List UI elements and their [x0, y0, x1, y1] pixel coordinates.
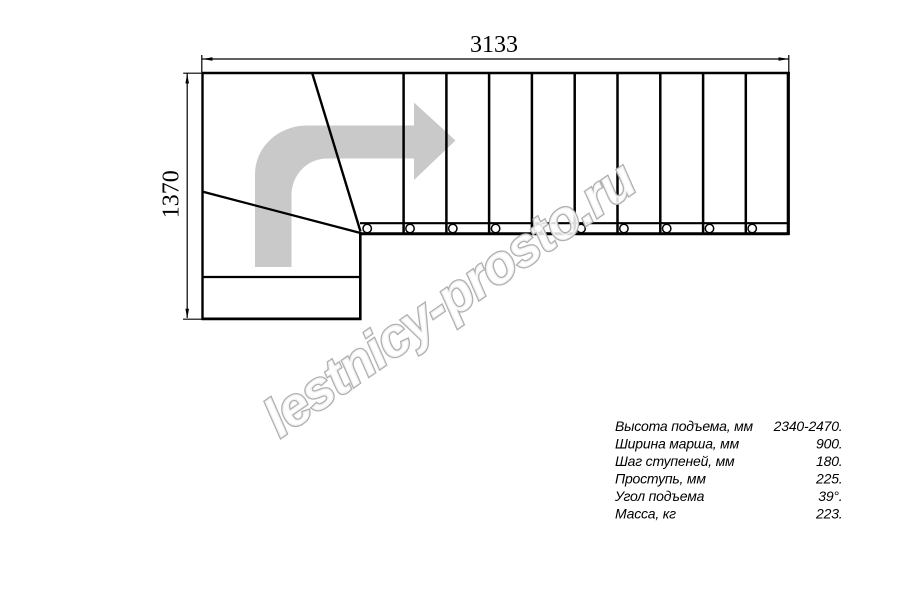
svg-text:900.: 900. — [816, 436, 842, 452]
svg-text:Масса, кг: Масса, кг — [615, 506, 676, 522]
svg-text:Шаг ступеней, мм: Шаг ступеней, мм — [615, 453, 735, 469]
svg-text:225.: 225. — [815, 471, 842, 487]
svg-text:223.: 223. — [815, 506, 842, 522]
svg-text:Высота подъема, мм: Высота подъема, мм — [615, 418, 754, 434]
svg-text:39°.: 39°. — [818, 488, 842, 504]
svg-text:3133: 3133 — [470, 32, 518, 58]
svg-text:1370: 1370 — [159, 170, 185, 218]
svg-text:Проступь, мм: Проступь, мм — [615, 471, 706, 487]
svg-text:Угол подъема: Угол подъема — [614, 488, 705, 504]
svg-text:Ширина марша, мм: Ширина марша, мм — [615, 436, 740, 452]
svg-text:180.: 180. — [816, 453, 842, 469]
svg-text:2340-2470.: 2340-2470. — [773, 418, 843, 434]
